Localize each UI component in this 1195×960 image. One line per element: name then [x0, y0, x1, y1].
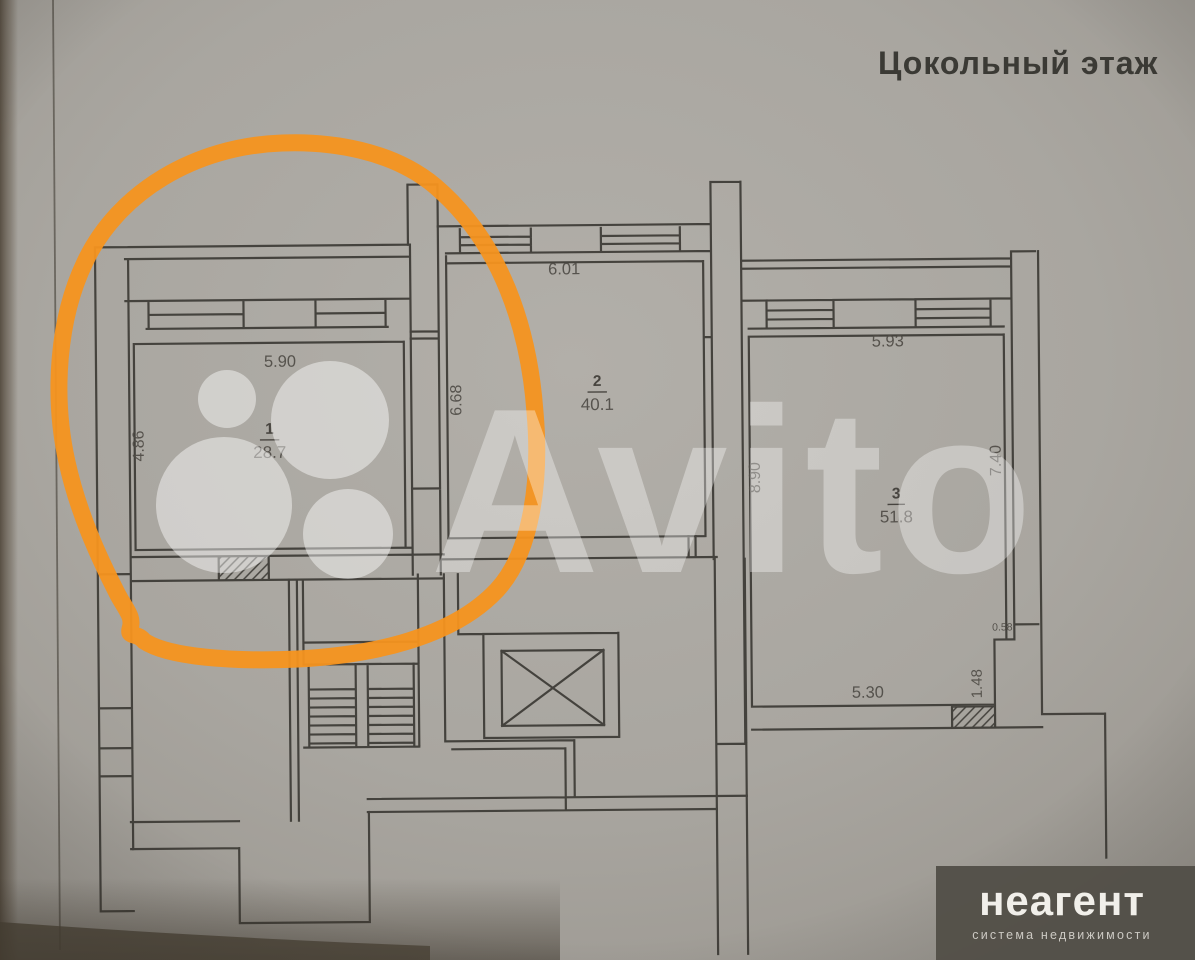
vignette	[0, 0, 1195, 960]
neagent-brand-name: неагент	[979, 877, 1145, 924]
neagent-brand-tagline: система недвижимости	[972, 928, 1151, 942]
neagent-banner: неагент система недвижимости	[936, 866, 1195, 960]
floor-plan: 5.90 1 28.7 4.86 6.01 2 40.1 6.68 5.93 3…	[0, 0, 1195, 960]
floor-plan-photo: 5.90 1 28.7 4.86 6.01 2 40.1 6.68 5.93 3…	[0, 0, 1195, 960]
